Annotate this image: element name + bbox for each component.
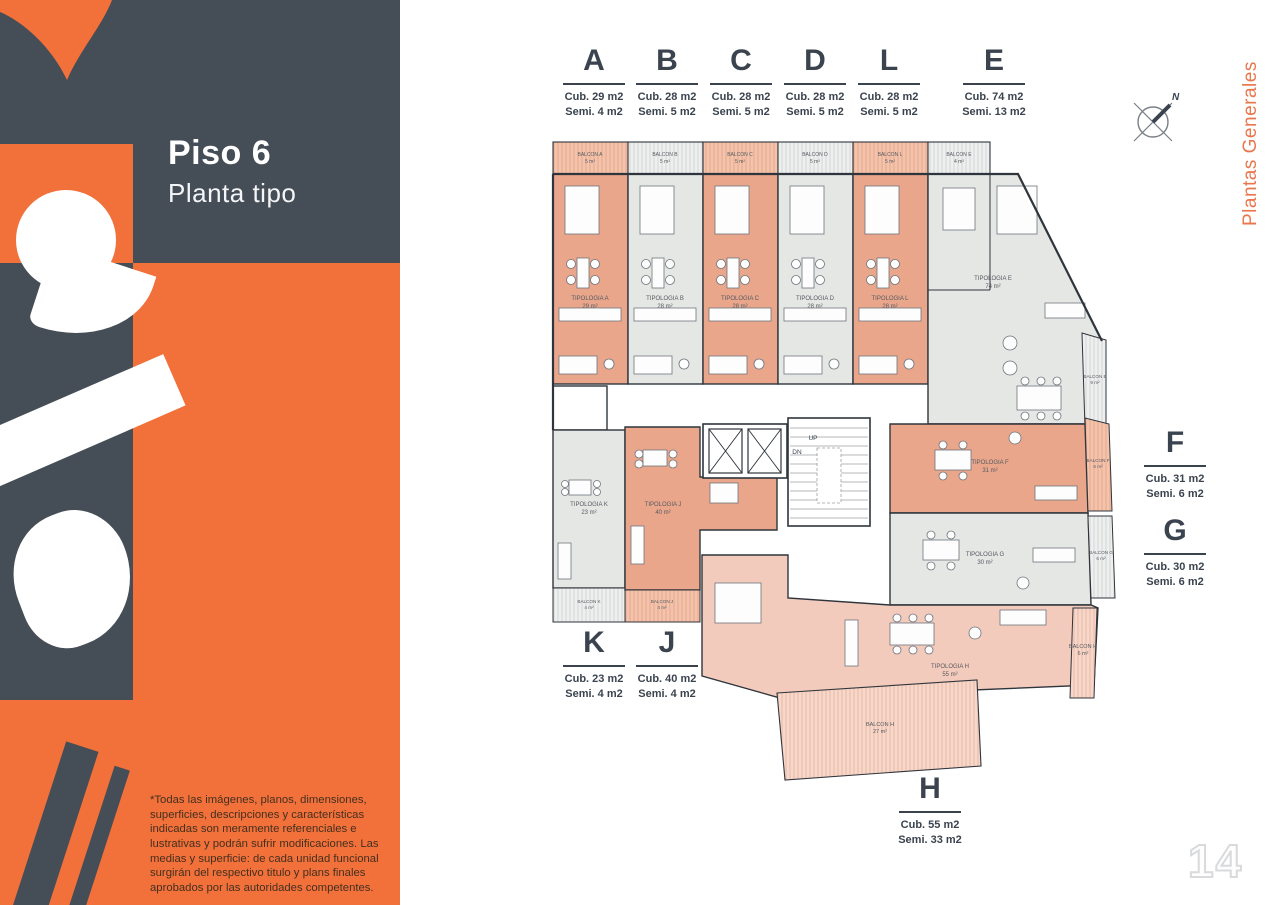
underline — [563, 83, 625, 85]
semi-area: Semi. 5 m2 — [625, 105, 709, 120]
stairs-dn-label: DN — [792, 449, 802, 456]
page-subtitle: Planta tipo — [168, 178, 296, 209]
svg-text:BALCON H: BALCON H — [1069, 644, 1097, 650]
units-fg — [890, 418, 1115, 605]
svg-text:TIPOLOGIA B: TIPOLOGIA B — [646, 296, 684, 302]
svg-text:40 m²: 40 m² — [655, 510, 670, 516]
unit-letter: B — [625, 46, 709, 76]
cub-area: Cub. 28 m2 — [847, 90, 931, 105]
brand-heart-shape — [0, 0, 133, 90]
svg-text:BALCON C: BALCON C — [727, 152, 753, 158]
unit-header-e: E Cub. 74 m2Semi. 13 m2 — [952, 46, 1036, 120]
svg-text:5 m²: 5 m² — [735, 159, 745, 165]
svg-text:29 m²: 29 m² — [582, 304, 597, 310]
svg-text:6 m²: 6 m² — [1096, 556, 1106, 561]
svg-text:TIPOLOGIA K: TIPOLOGIA K — [570, 502, 608, 508]
underline — [636, 83, 698, 85]
cub-area: Cub. 28 m2 — [625, 90, 709, 105]
underline — [899, 811, 961, 813]
unit-header-l: L Cub. 28 m2Semi. 5 m2 — [847, 46, 931, 120]
svg-text:5 m²: 5 m² — [885, 159, 895, 165]
semi-area: Semi. 4 m2 — [552, 105, 636, 120]
balconies-top — [553, 142, 990, 174]
underline — [784, 83, 846, 85]
underline — [1144, 465, 1206, 467]
cub-area: Cub. 74 m2 — [952, 90, 1036, 105]
semi-area: Semi. 13 m2 — [952, 105, 1036, 120]
section-tab: Plantas Generales — [1240, 26, 1262, 226]
compass-icon: N — [1124, 88, 1186, 150]
svg-text:BALCON L: BALCON L — [878, 152, 903, 158]
svg-text:TIPOLOGIA C: TIPOLOGIA C — [721, 296, 760, 302]
svg-text:4 m²: 4 m² — [954, 159, 964, 165]
svg-text:55 m²: 55 m² — [942, 672, 957, 678]
svg-text:BALCON H: BALCON H — [866, 722, 894, 728]
cub-area: Cub. 55 m2 — [888, 818, 972, 833]
cub-area: Cub. 28 m2 — [773, 90, 857, 105]
svg-text:TIPOLOGIA D: TIPOLOGIA D — [796, 296, 835, 302]
semi-area: Semi. 6 m2 — [1133, 575, 1217, 590]
legal-disclaimer: *Todas las imágenes, planos, dimensiones… — [150, 793, 382, 896]
svg-text:BALCON E: BALCON E — [946, 152, 972, 158]
svg-text:5 m²: 5 m² — [660, 159, 670, 165]
unit-header-c: C Cub. 28 m2Semi. 5 m2 — [699, 46, 783, 120]
unit-letter: A — [552, 46, 636, 76]
svg-text:6 m²: 6 m² — [1093, 464, 1103, 469]
brochure-page: { "page": { "number": "14", "side_tab": … — [0, 0, 1280, 905]
cub-area: Cub. 30 m2 — [1133, 560, 1217, 575]
svg-text:TIPOLOGIA H: TIPOLOGIA H — [931, 664, 969, 670]
svg-text:TIPOLOGIA F: TIPOLOGIA F — [971, 460, 1009, 466]
svg-text:5 m²: 5 m² — [810, 159, 820, 165]
unit-header-a: A Cub. 29 m2Semi. 4 m2 — [552, 46, 636, 120]
page-title: Piso 6 — [168, 134, 271, 173]
cub-area: Cub. 31 m2 — [1133, 472, 1217, 487]
svg-text:TIPOLOGIA J: TIPOLOGIA J — [645, 502, 682, 508]
svg-text:BALCON F: BALCON F — [1087, 458, 1110, 463]
brand-sidebar: Piso 6 Planta tipo *Todas las imágenes, … — [0, 0, 400, 905]
svg-text:BALCON J: BALCON J — [651, 599, 673, 604]
svg-text:TIPOLOGIA L: TIPOLOGIA L — [871, 296, 909, 302]
svg-text:28 m²: 28 m² — [882, 304, 897, 310]
underline — [1144, 553, 1206, 555]
semi-area: Semi. 33 m2 — [888, 833, 972, 848]
semi-area: Semi. 6 m2 — [1133, 487, 1217, 502]
svg-text:74 m²: 74 m² — [985, 284, 1000, 290]
svg-text:4 m²: 4 m² — [657, 605, 667, 610]
unit-header-g: G Cub. 30 m2Semi. 6 m2 — [1133, 516, 1217, 590]
svg-text:TIPOLOGIA A: TIPOLOGIA A — [571, 296, 608, 302]
svg-text:BALCON K: BALCON K — [577, 599, 601, 604]
svg-text:9 m²: 9 m² — [1090, 380, 1100, 385]
svg-text:28 m²: 28 m² — [657, 304, 672, 310]
unit-letter: L — [847, 46, 931, 76]
svg-text:30 m²: 30 m² — [977, 560, 992, 566]
unit-letter: F — [1133, 428, 1217, 458]
unit-letter: C — [699, 46, 783, 76]
page-number: 14 — [1188, 834, 1243, 888]
cub-area: Cub. 29 m2 — [552, 90, 636, 105]
cub-area: Cub. 28 m2 — [699, 90, 783, 105]
svg-text:BALCON G: BALCON G — [1089, 550, 1113, 555]
svg-text:4 m²: 4 m² — [584, 605, 594, 610]
unit-letter: D — [773, 46, 857, 76]
svg-text:27 m²: 27 m² — [873, 729, 887, 735]
underline — [858, 83, 920, 85]
stairs-up-label: UP — [808, 435, 817, 442]
semi-area: Semi. 5 m2 — [773, 105, 857, 120]
svg-text:TIPOLOGIA G: TIPOLOGIA G — [966, 552, 1005, 558]
svg-text:23 m²: 23 m² — [581, 510, 596, 516]
compass-north-label: N — [1172, 92, 1180, 103]
svg-text:5 m²: 5 m² — [585, 159, 595, 165]
unit-header-b: B Cub. 28 m2Semi. 5 m2 — [625, 46, 709, 120]
semi-area: Semi. 5 m2 — [847, 105, 931, 120]
unit-header-d: D Cub. 28 m2Semi. 5 m2 — [773, 46, 857, 120]
underline — [710, 83, 772, 85]
unit-letter: E — [952, 46, 1036, 76]
svg-text:BALCON D: BALCON D — [802, 152, 828, 158]
semi-area: Semi. 5 m2 — [699, 105, 783, 120]
underline — [963, 83, 1025, 85]
utility-room — [553, 386, 607, 430]
svg-text:BALCON E: BALCON E — [1083, 374, 1106, 379]
unit-header-f: F Cub. 31 m2Semi. 6 m2 — [1133, 428, 1217, 502]
svg-text:31 m²: 31 m² — [982, 468, 997, 474]
svg-text:BALCON A: BALCON A — [577, 152, 603, 158]
svg-text:6 m²: 6 m² — [1078, 651, 1089, 657]
svg-text:TIPOLOGIA E: TIPOLOGIA E — [974, 276, 1012, 282]
svg-text:28 m²: 28 m² — [732, 304, 747, 310]
svg-text:28 m²: 28 m² — [807, 304, 822, 310]
floor-plan: BALCON A5 m² BALCON B5 m² BALCON C5 m² B… — [545, 128, 1120, 788]
svg-text:BALCON B: BALCON B — [652, 152, 678, 158]
unit-letter: G — [1133, 516, 1217, 546]
